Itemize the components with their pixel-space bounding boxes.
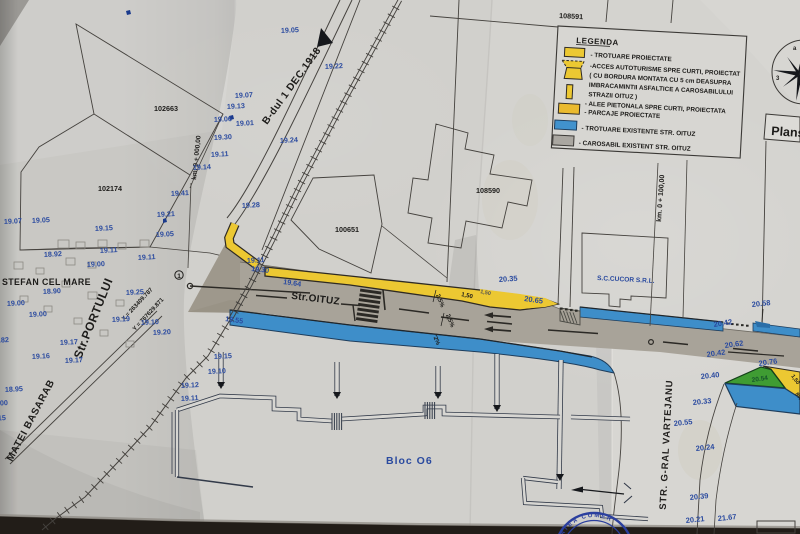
svg-text:19.11: 19.11 xyxy=(100,245,118,255)
svg-text:1: 1 xyxy=(177,273,181,280)
svg-text:19.05: 19.05 xyxy=(32,215,50,225)
svg-text:Bloc O6: Bloc O6 xyxy=(386,455,433,467)
svg-text:19.19: 19.19 xyxy=(112,314,130,324)
svg-text:19.11: 19.11 xyxy=(211,149,229,159)
svg-text:19.06: 19.06 xyxy=(214,114,232,124)
svg-text:19.15: 19.15 xyxy=(214,351,232,361)
svg-text:18.90: 18.90 xyxy=(43,286,61,296)
svg-text:19.00: 19.00 xyxy=(29,309,47,319)
svg-text:19.16: 19.16 xyxy=(32,351,50,361)
svg-text:19.41: 19.41 xyxy=(171,188,189,198)
svg-text:19.15: 19.15 xyxy=(95,223,113,233)
svg-text:20.35: 20.35 xyxy=(499,274,518,284)
svg-text:19.07: 19.07 xyxy=(235,90,253,100)
svg-text:19.00: 19.00 xyxy=(87,259,105,269)
svg-text:19.13: 19.13 xyxy=(227,101,245,111)
svg-text:19.17: 19.17 xyxy=(65,355,83,365)
svg-text:19.01: 19.01 xyxy=(236,118,254,128)
svg-text:19.00: 19.00 xyxy=(7,298,25,308)
svg-text:19.30: 19.30 xyxy=(214,132,232,142)
svg-text:18.95: 18.95 xyxy=(5,384,23,394)
svg-text:19.10: 19.10 xyxy=(208,366,226,376)
svg-text:19.00: 19.00 xyxy=(0,398,8,408)
svg-text:19.11: 19.11 xyxy=(181,393,199,403)
svg-text:19.15: 19.15 xyxy=(0,413,6,423)
svg-text:19.12: 19.12 xyxy=(181,380,199,390)
svg-text:18.92: 18.92 xyxy=(44,249,62,259)
svg-text:19.14: 19.14 xyxy=(193,162,211,172)
svg-text:19.05: 19.05 xyxy=(281,25,299,35)
svg-text:19.28: 19.28 xyxy=(242,200,260,210)
svg-text:19.07: 19.07 xyxy=(4,216,22,226)
svg-text:19.30: 19.30 xyxy=(251,264,270,275)
svg-text:19.82: 19.82 xyxy=(0,335,9,345)
svg-text:19.25: 19.25 xyxy=(126,287,144,297)
svg-text:19.05: 19.05 xyxy=(156,229,174,239)
svg-text:102174: 102174 xyxy=(98,184,122,193)
svg-text:19.24: 19.24 xyxy=(280,135,298,145)
svg-text:102663: 102663 xyxy=(154,104,178,113)
svg-text:19.17: 19.17 xyxy=(60,337,78,347)
svg-text:19.11: 19.11 xyxy=(138,252,156,262)
svg-text:19.22: 19.22 xyxy=(325,61,343,71)
svg-text:108591: 108591 xyxy=(559,11,583,21)
svg-text:108590: 108590 xyxy=(476,186,500,195)
svg-text:19.10: 19.10 xyxy=(141,317,159,327)
svg-text:100651: 100651 xyxy=(335,225,359,234)
svg-text:19.21: 19.21 xyxy=(157,209,175,219)
svg-text:19.20: 19.20 xyxy=(153,327,171,337)
svg-text:Plans: Plans xyxy=(771,124,800,140)
svg-text:STEFAN CEL MARE: STEFAN CEL MARE xyxy=(2,277,91,287)
